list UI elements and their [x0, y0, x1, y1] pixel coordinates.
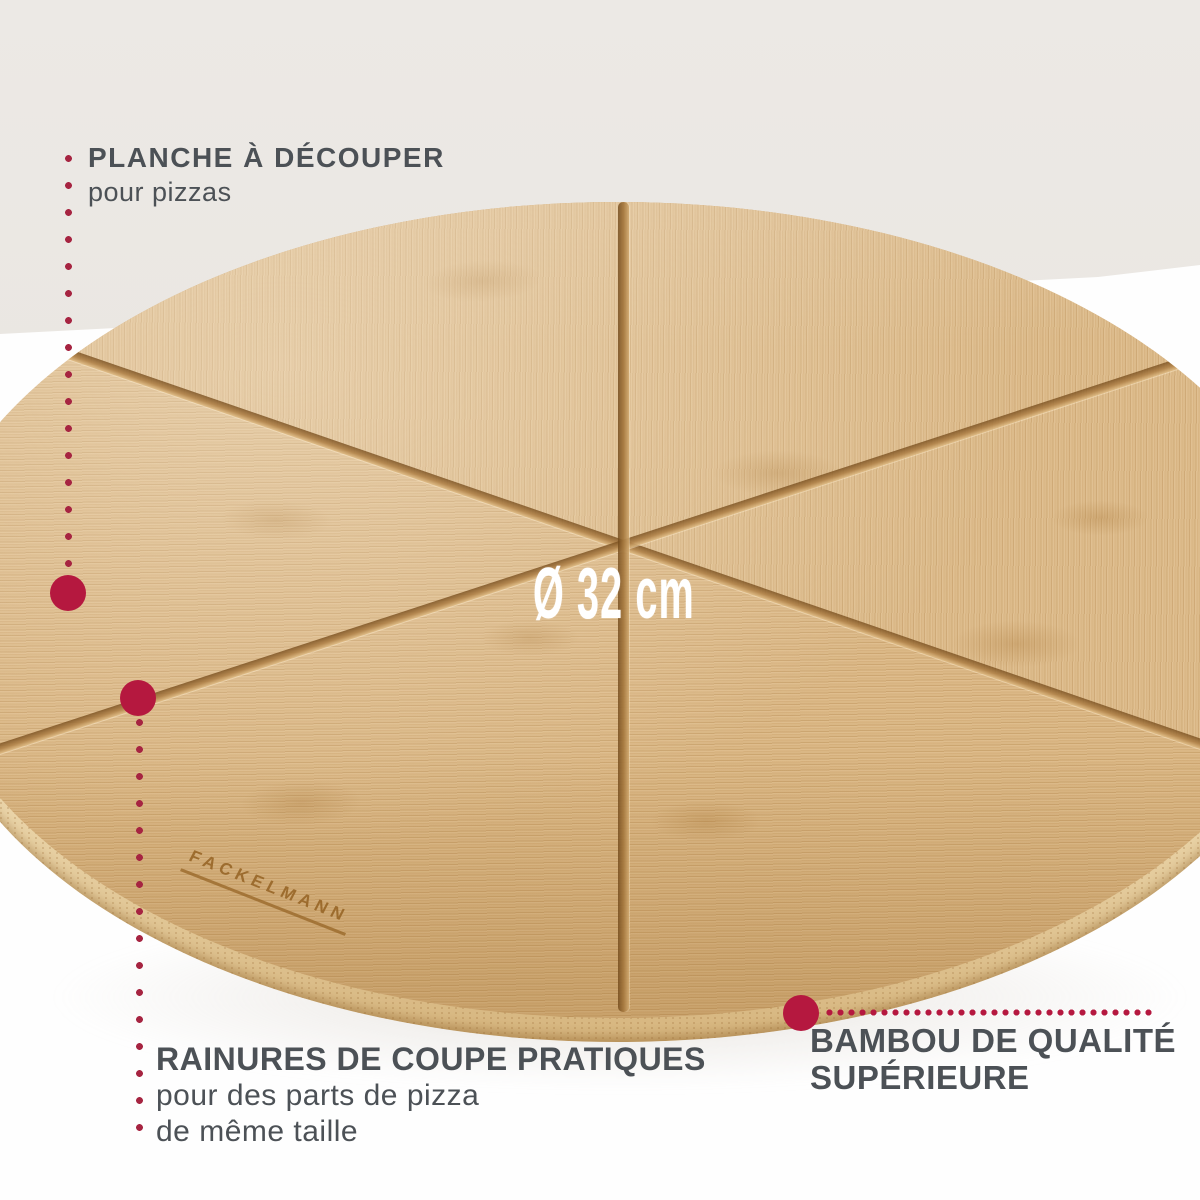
product-feature-image: FACKELMANN Ø 32 cm PLANCHE À DÉCOUPER po…: [0, 0, 1200, 1200]
callout-title: RAINURES DE COUPE PRATIQUES: [156, 1040, 706, 1078]
callout-cutting-board: PLANCHE À DÉCOUPER pour pizzas: [88, 140, 445, 210]
callout-title: BAMBOU DE QUALITÉ: [810, 1022, 1176, 1059]
callout-dot: [50, 575, 86, 611]
callout-title: SUPÉRIEURE: [810, 1059, 1176, 1096]
callout-title: PLANCHE À DÉCOUPER: [88, 140, 445, 175]
callout-grooves: RAINURES DE COUPE PRATIQUES pour des par…: [156, 1040, 706, 1150]
callout-bamboo: BAMBOU DE QUALITÉ SUPÉRIEURE: [810, 1022, 1176, 1096]
bamboo-pizza-board: FACKELMANN Ø 32 cm: [0, 202, 1200, 1018]
callout-subtitle: pour des parts de pizza: [156, 1078, 706, 1114]
callout-dotted-line: [64, 154, 73, 578]
callout-dotted-line: [135, 718, 144, 1148]
callout-dotted-line: [824, 1008, 1156, 1017]
diameter-label: Ø 32 cm: [533, 558, 698, 630]
callout-subtitle: pour pizzas: [88, 175, 445, 210]
callout-subtitle: de même taille: [156, 1114, 706, 1150]
callout-dot: [120, 680, 156, 716]
